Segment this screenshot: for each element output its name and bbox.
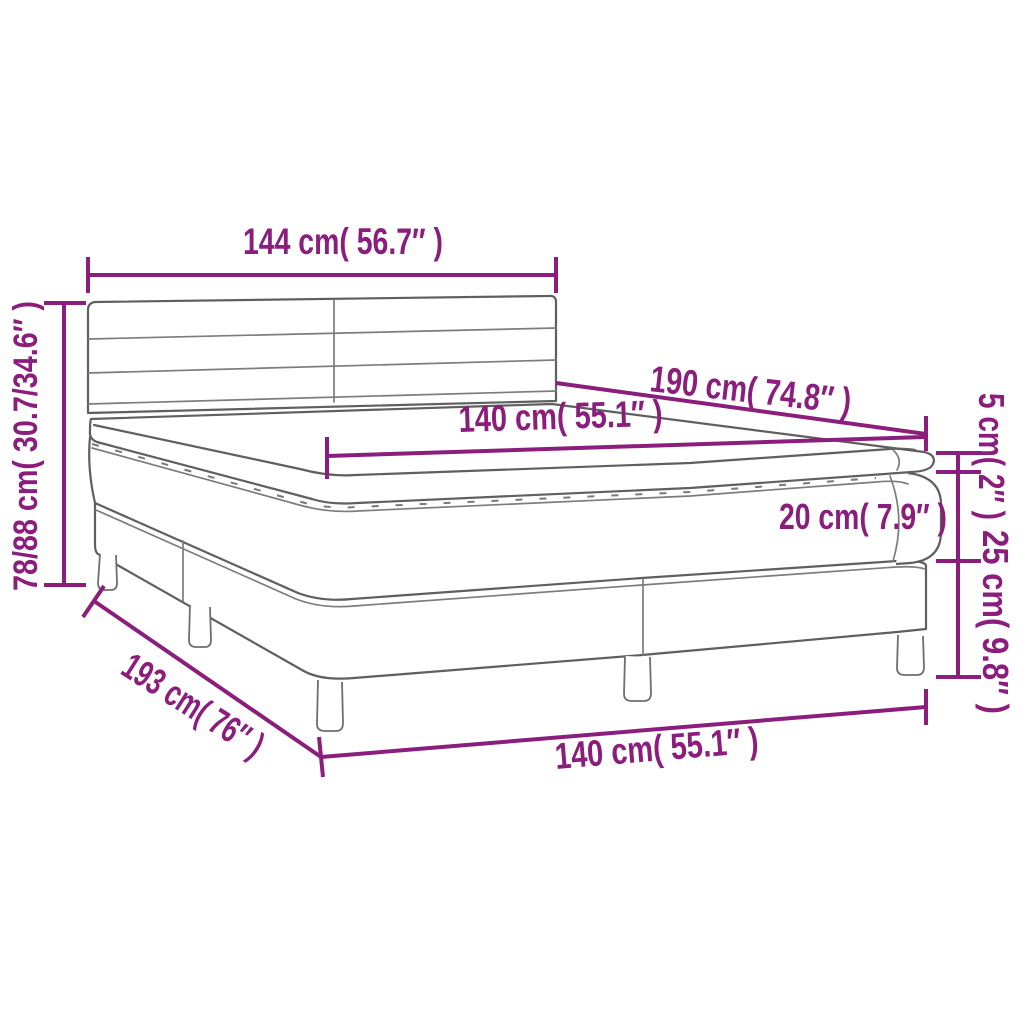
- leg-front-corner: [317, 680, 343, 731]
- dim-label-base-height: 25 cm( 9.8″ ): [975, 530, 1016, 714]
- dim-tick-base-width-left: [319, 737, 323, 777]
- headboard-outline: [88, 296, 556, 413]
- dim-base-width: 140 cm( 55.1″ ): [319, 689, 926, 777]
- dim-label-total-height: 78/88 cm( 30.7/34.6″ ): [7, 301, 45, 591]
- dim-label-base-width: 140 cm( 55.1″ ): [553, 719, 760, 777]
- leg-front-right: [897, 635, 924, 675]
- dim-headboard-width: 144 cm( 56.7″ ): [88, 221, 556, 293]
- leg-front-middle: [624, 656, 651, 701]
- headboard: [88, 296, 556, 413]
- bed-dimension-diagram: 144 cm( 56.7″ ) 78/88 cm( 30.7/34.6″ ) 1…: [0, 0, 1024, 1024]
- dim-total-height: 78/88 cm( 30.7/34.6″ ): [7, 301, 86, 591]
- leg-back-left: [98, 554, 117, 590]
- leg-left-middle: [189, 605, 211, 647]
- dim-label-topper-height: 5 cm( 2″ ): [971, 393, 1012, 520]
- mattress-left-edge: [89, 437, 95, 503]
- diagram-canvas: 144 cm( 56.7″ ) 78/88 cm( 30.7/34.6″ ) 1…: [0, 0, 1024, 1024]
- dim-label-bed-length: 190 cm( 74.8″ ): [648, 358, 853, 422]
- dim-tick-total-length-top: [83, 586, 104, 617]
- dim-label-headboard-width: 144 cm( 56.7″ ): [243, 221, 443, 262]
- dim-label-mattress-width: 140 cm( 55.1″ ): [458, 393, 663, 440]
- dim-label-mattress-height: 20 cm( 7.9″ ): [779, 496, 947, 537]
